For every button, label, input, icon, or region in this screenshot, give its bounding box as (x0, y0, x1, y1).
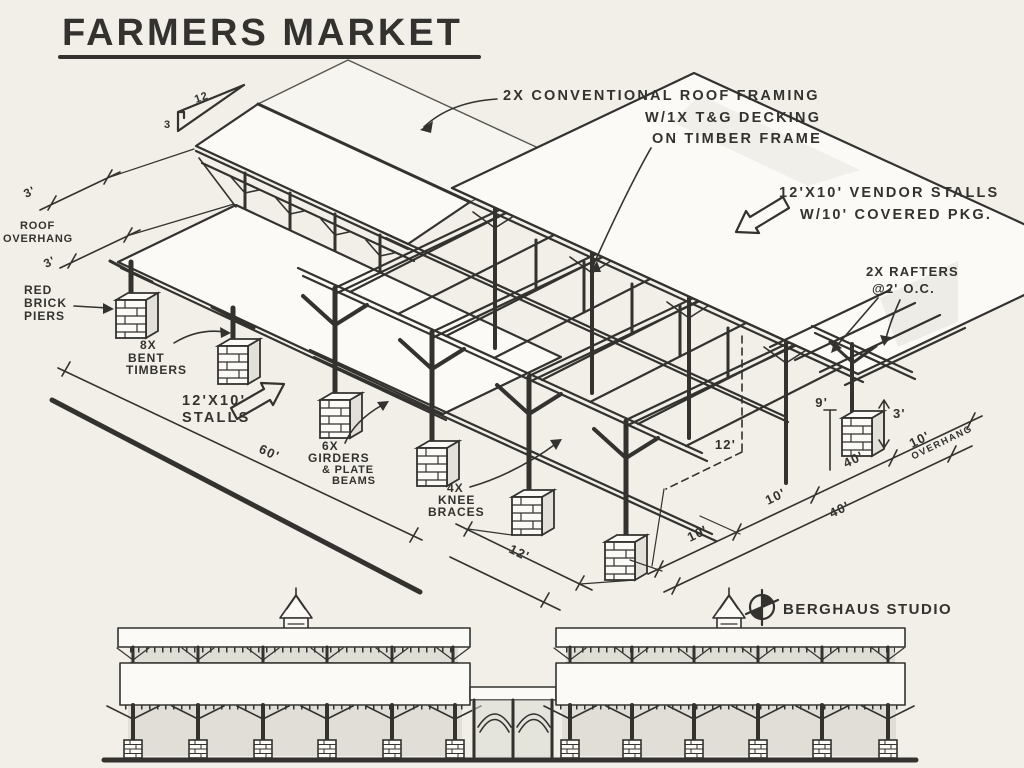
pitch-rise-label: 3 (164, 119, 171, 131)
dim-depth-total: 40' (827, 498, 853, 521)
callout-stalls-1: 12'X10' (182, 393, 246, 409)
elevation-fascia (556, 663, 905, 705)
callout-vendor-stalls-2: W/10' COVERED PKG. (800, 207, 992, 223)
brick-pier (512, 490, 554, 535)
brick-pier (218, 339, 260, 384)
brick-pier (320, 393, 362, 438)
elevation-fascia (120, 663, 470, 705)
sketch-page: FARMERS MARKET 12 3 (0, 0, 1024, 768)
title-block: FARMERS MARKET (60, 12, 479, 57)
dim-depth-bay-1: 10' (685, 522, 711, 545)
callout-girders-2: GIRDERS (308, 451, 370, 465)
pitch-run-label: 12 (193, 90, 210, 106)
brick-pier (605, 535, 647, 580)
callout-rafters-2: @2' O.C. (872, 281, 935, 296)
callout-knee-braces-3: BRACES (428, 505, 485, 519)
callout-red-brick-piers-2: BRICK (24, 296, 67, 310)
dim-overhang-lower: 3' (41, 253, 57, 271)
dim-length-total: 60' (257, 441, 283, 464)
callout-vendor-stalls-1: 12'X10' VENDOR STALLS (779, 185, 999, 201)
brick-pier (417, 441, 459, 486)
elevation-roof-band (556, 628, 905, 647)
dim-post-height: 12' (715, 437, 736, 452)
callout-red-brick-piers-1: RED (24, 283, 52, 297)
brick-pier (842, 411, 884, 456)
page-title: FARMERS MARKET (62, 12, 463, 54)
callout-girders-4: BEAMS (332, 475, 376, 487)
dim-stall-bay: 12' (507, 541, 533, 564)
callout-roof-overhang-1: ROOF (20, 220, 55, 232)
studio-name: BERGHAUS STUDIO (783, 601, 952, 618)
elevation-arcade-band (470, 687, 556, 700)
callout-red-brick-piers-3: PIERS (24, 309, 65, 323)
farmers-market-drawing: FARMERS MARKET 12 3 (0, 0, 1024, 768)
brick-pier (116, 293, 158, 338)
dim-eave-height: 9' (815, 395, 828, 410)
callout-roof-framing-2: W/1X T&G DECKING (645, 110, 821, 126)
elevation-roof-band (118, 628, 470, 647)
callout-rafters-1: 2X RAFTERS (866, 264, 959, 279)
callout-roof-framing-3: ON TIMBER FRAME (652, 131, 822, 147)
dim-overhang-upper: 3' (21, 183, 37, 201)
callout-bent-timbers-1: 8X (140, 338, 157, 352)
callout-roof-overhang-2: OVERHANG (3, 233, 73, 245)
dim-depth-bay-2: 10' (763, 485, 789, 508)
compass-icon (746, 590, 778, 625)
callout-bent-timbers-3: TIMBERS (126, 363, 187, 377)
callout-roof-framing-1: 2X CONVENTIONAL ROOF FRAMING (503, 88, 820, 104)
studio-signature: BERGHAUS STUDIO (746, 590, 952, 625)
dim-pier-height: 3' (893, 406, 906, 421)
